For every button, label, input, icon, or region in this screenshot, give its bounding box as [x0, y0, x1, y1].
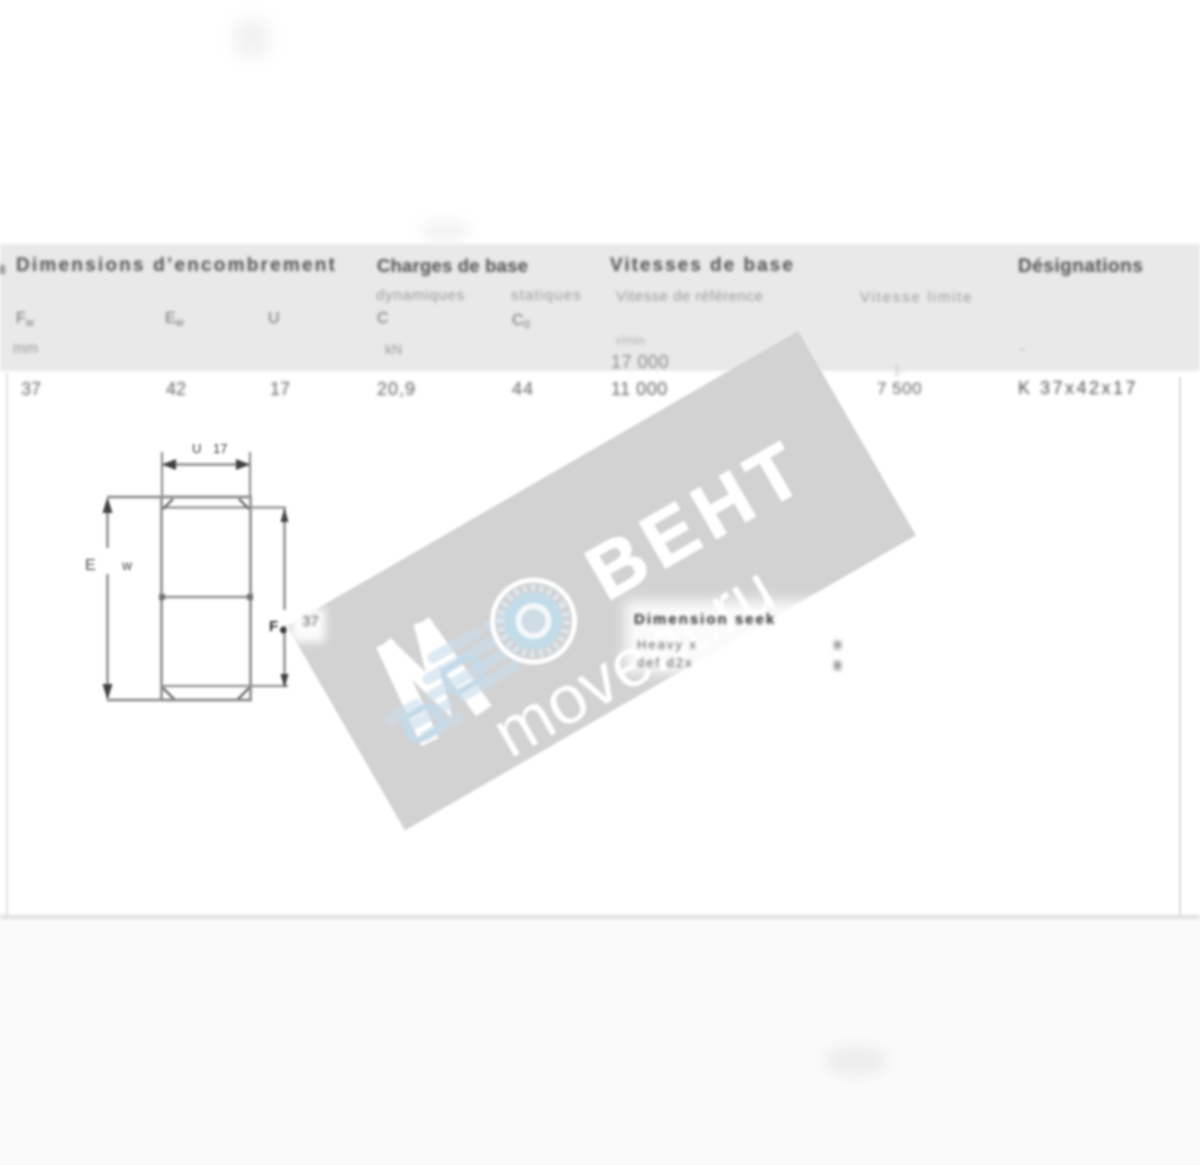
svg-text:U: U: [192, 441, 201, 456]
svg-text:w: w: [121, 557, 133, 573]
svg-text:E: E: [85, 557, 96, 574]
svg-text:F: F: [269, 618, 278, 635]
svg-text:17: 17: [213, 441, 227, 456]
